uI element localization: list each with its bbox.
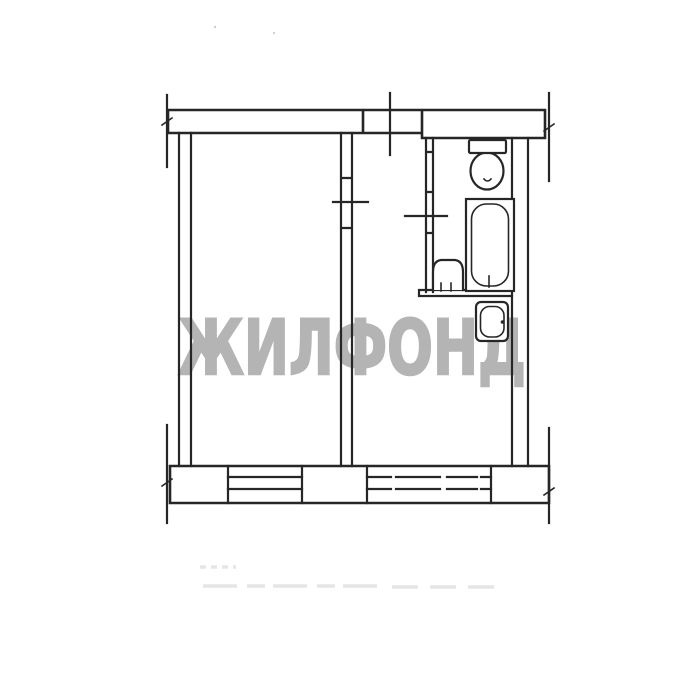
washbasin-outline (433, 260, 463, 290)
bottom-wall-joints (228, 466, 491, 503)
paper-speck (273, 32, 275, 34)
window-right-glazing (367, 477, 491, 489)
top-wall-lines (168, 110, 545, 138)
room-partition-wall (333, 133, 368, 466)
room-partition-lines (341, 133, 352, 466)
left-wall (179, 133, 191, 466)
bathtub-icon (466, 199, 514, 291)
scanned-floorplan-page: ЖИЛФОНД (0, 0, 700, 700)
paper-speck (214, 26, 216, 28)
bottom-exterior-wall (170, 466, 549, 503)
toilet-tank (469, 140, 506, 153)
toilet-icon (469, 140, 506, 190)
kitchen-sink-drain (501, 320, 505, 324)
floor-plan: ЖИЛФОНД (0, 0, 700, 700)
toilet-bowl (471, 153, 504, 190)
bottom-wall-outline (170, 466, 549, 503)
right-wall (512, 138, 528, 466)
kitchen-sink-icon (476, 302, 508, 341)
top-exterior-wall (168, 110, 545, 138)
washbasin-icon (433, 260, 463, 291)
window-left-glazing (228, 477, 302, 489)
